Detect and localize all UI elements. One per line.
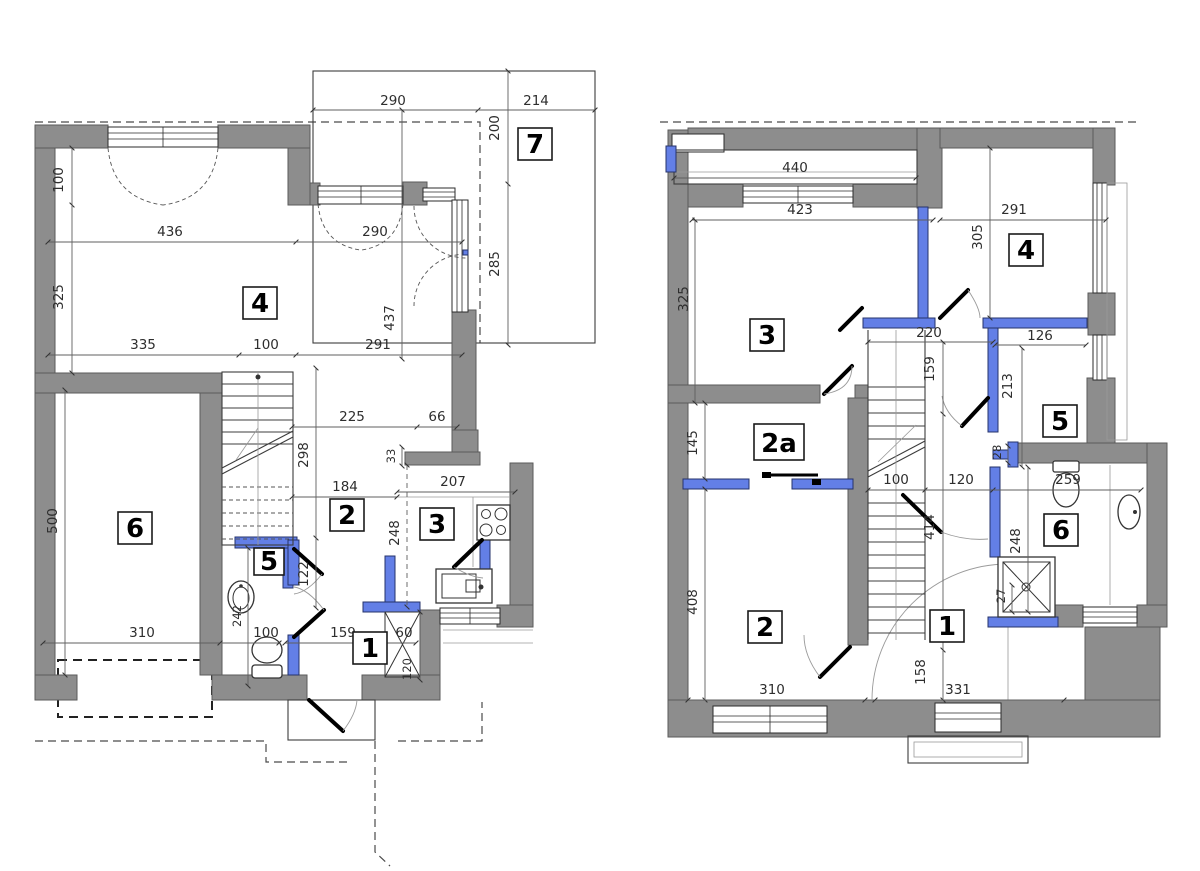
stove-icon [477,505,510,540]
room-label: 4 [243,287,277,319]
dimension-label: 440 [782,160,808,176]
dimension-label: 290 [362,224,388,240]
room-label: 2 [330,499,364,531]
dimension-label: 331 [945,682,971,698]
dimension-label: 207 [440,474,466,490]
floorplan-image: 290 214 200 285 100 436 290 325 437 335 … [0,0,1200,871]
window-icon [1093,335,1107,380]
stairs [222,372,293,545]
shower-icon [998,557,1055,617]
dimension-label: 310 [759,682,785,698]
window-icon [743,186,853,203]
dimension-label: 225 [339,409,365,425]
dimension-label: 158 [913,659,929,685]
svg-text:1: 1 [361,634,379,664]
dimension-label: 298 [296,442,312,468]
dimension-label: 437 [382,305,398,331]
window-icon [1093,183,1107,293]
dimension-label: 120 [400,658,414,680]
dimension-label: 423 [787,202,813,218]
door-leaf [294,610,324,637]
svg-text:6: 6 [126,514,144,544]
dimension-label: 60 [395,625,412,641]
door-leaf [820,647,850,677]
window-icon [666,146,676,172]
dimension-label: 200 [487,115,503,141]
dimension-label: 408 [685,589,701,615]
floor-plan-page: 290 214 200 285 100 436 290 325 437 335 … [0,0,1200,871]
dimension-label: 414 [922,514,938,540]
dimension-label: 27 [994,589,1008,604]
washbasin-icon [1118,495,1140,529]
svg-text:6: 6 [1052,516,1070,546]
dimension-label: 248 [1008,528,1024,554]
svg-text:3: 3 [758,321,776,351]
dimension-label: 28 [990,445,1004,460]
room-label: 4 [1009,234,1043,266]
dimension-label: 436 [157,224,183,240]
dimension-label: 290 [380,93,406,109]
window-icon [1083,607,1137,623]
dimension-label: 184 [332,479,358,495]
dimension-label: 259 [1055,472,1081,488]
svg-text:2: 2 [756,613,774,643]
dimension-label: 325 [51,284,67,310]
svg-text:5: 5 [260,547,278,577]
svg-text:4: 4 [251,289,269,319]
room-label: 6 [118,512,152,544]
dimension-label: 159 [330,625,356,641]
window-icon [713,706,827,733]
dimension-label: 248 [387,520,403,546]
dimension-label: 159 [922,356,938,382]
room-label: 5 [254,547,284,577]
dimension-label: 242 [230,605,244,627]
dimension-label: 120 [948,472,974,488]
kitchen-sink-icon [436,569,492,603]
dimension-label: 122 [296,561,312,587]
room-label: 3 [420,508,454,540]
room-label: 6 [1044,514,1078,546]
door-leaf [454,540,482,567]
dimension-label: 500 [45,508,61,534]
dimension-label: 285 [487,251,503,277]
room-label: 7 [518,128,552,160]
dimension-label: 33 [384,449,398,464]
french-window-icon [318,186,403,250]
door-leaf [940,290,968,318]
dimension-label: 145 [685,430,701,456]
svg-text:7: 7 [526,130,544,160]
dimension-label: 310 [129,625,155,641]
french-window-icon [108,127,218,205]
room-label: 3 [750,319,784,351]
dimension-label: 100 [51,167,67,193]
svg-text:2a: 2a [761,429,797,459]
svg-text:2: 2 [338,501,356,531]
door-leaf [840,308,862,330]
room-label: 2 [748,611,782,643]
dimension-label: 126 [1027,328,1053,344]
dimension-label: 335 [130,337,156,353]
dimension-label: 291 [365,337,391,353]
room-label: 2a [754,424,804,460]
room-label: 5 [1043,405,1077,437]
dimension-label: 100 [253,337,279,353]
svg-text:1: 1 [938,612,956,642]
room-label: 1 [930,610,964,642]
room-label: 1 [353,632,387,664]
dimension-label: 220 [916,325,942,341]
dimension-label: 305 [970,224,986,250]
dimension-label: 213 [1000,373,1016,399]
ground-floor-plan: 290 214 200 285 100 436 290 325 437 335 … [35,71,595,866]
dimension-label: 66 [428,409,445,425]
svg-text:4: 4 [1017,236,1035,266]
corner-window-icon [414,188,468,312]
door-leaf [962,398,988,426]
wall-notch [672,134,724,152]
svg-text:3: 3 [428,510,446,540]
dimension-label: 325 [676,286,692,312]
dimension-label: 100 [253,625,279,641]
svg-text:5: 5 [1051,407,1069,437]
dimension-label: 214 [523,93,549,109]
dashed-outlines [35,122,482,866]
dimension-label: 291 [1001,202,1027,218]
balcony [908,736,1028,763]
garage-door-dashed [58,660,212,717]
door-leaf [309,700,343,731]
upper-floor-plan: 440 423 291 305 325 220 126 159 213 28 1… [660,122,1167,763]
dimension-label: 100 [883,472,909,488]
